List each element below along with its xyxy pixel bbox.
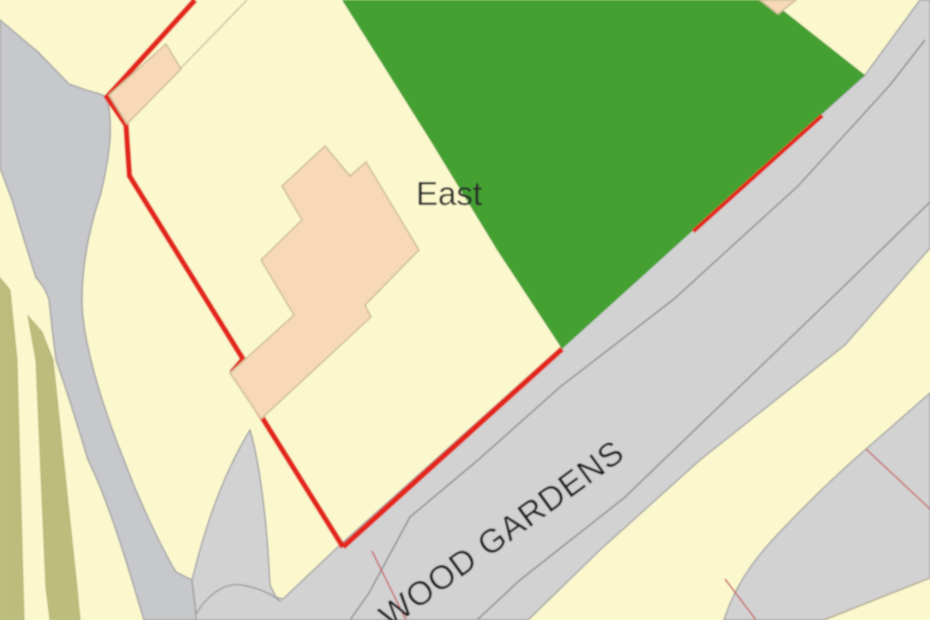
svg-text:East: East bbox=[416, 175, 482, 212]
